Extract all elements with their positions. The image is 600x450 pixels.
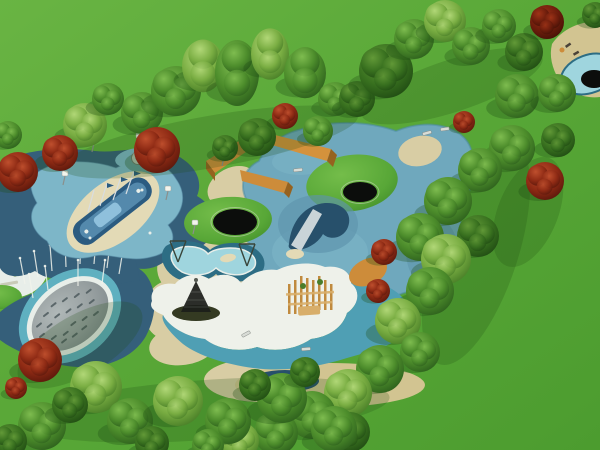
tree-canopy [75, 122, 93, 140]
tree-canopy [279, 114, 290, 125]
jet-spray-tip [77, 259, 80, 262]
lamp-head [165, 186, 171, 191]
jet-spray-tip [19, 257, 22, 260]
tree-canopy [540, 20, 554, 34]
scene-canvas [0, 0, 600, 450]
tree-canopy [349, 97, 364, 112]
tree-canopy [324, 426, 343, 445]
tree-canopy [120, 418, 139, 437]
tree-canopy [259, 50, 282, 73]
tree-canopy [167, 398, 188, 419]
tree-canopy [52, 151, 67, 166]
tree-canopy [459, 121, 468, 130]
tree-canopy [516, 50, 532, 66]
in-ground-trampoline [343, 182, 377, 202]
tree-canopy [537, 179, 553, 195]
jet-spray-tip [28, 273, 31, 276]
lamp-head [192, 220, 198, 225]
tree-canopy [101, 97, 114, 110]
tree-canopy [133, 110, 151, 128]
tree-canopy [411, 350, 428, 367]
tree-canopy [85, 384, 107, 406]
tree-canopy [373, 290, 383, 300]
tree-canopy [249, 135, 265, 151]
tree-canopy [147, 147, 166, 166]
tree-canopy [551, 138, 565, 152]
tree-canopy [419, 288, 439, 308]
tree-canopy [492, 24, 506, 38]
tree-canopy [311, 129, 324, 142]
tree-canopy [31, 423, 51, 443]
tree-canopy [369, 366, 389, 386]
tree-canopy [436, 18, 454, 36]
tree-canopy [218, 418, 237, 437]
tree-canopy [224, 70, 250, 96]
jet-spray-tip [44, 265, 47, 268]
tree-canopy [388, 318, 407, 337]
tree-canopy [374, 68, 397, 91]
tree-canopy [11, 387, 20, 396]
in-ground-trampoline [213, 209, 257, 235]
tree-canopy [9, 170, 26, 187]
tree-canopy [165, 88, 186, 109]
tree-canopy [298, 370, 311, 383]
tree-canopy [248, 383, 261, 396]
tree-canopy [266, 430, 284, 448]
tree-canopy [292, 68, 317, 93]
tree-canopy [271, 395, 292, 416]
bench [301, 347, 310, 351]
tree-canopy [62, 403, 77, 418]
tree-canopy [30, 357, 48, 375]
jet-spray-tip [104, 259, 107, 262]
tree-canopy [469, 233, 487, 251]
tree-canopy [507, 93, 525, 111]
tree-canopy [437, 198, 457, 218]
bench [293, 168, 302, 172]
playground-aerial-rendering [0, 0, 600, 450]
jet-spray-tip [33, 250, 36, 253]
tree-canopy [502, 145, 521, 164]
tree-canopy [470, 167, 488, 185]
tree-canopy [589, 13, 600, 24]
tree-canopy [190, 61, 215, 86]
tree-canopy [463, 44, 479, 60]
tree-canopy [378, 250, 389, 261]
tree-canopy [2, 133, 14, 145]
tree-canopy [405, 37, 422, 54]
tree-canopy [219, 146, 230, 157]
tree-canopy [549, 91, 565, 107]
